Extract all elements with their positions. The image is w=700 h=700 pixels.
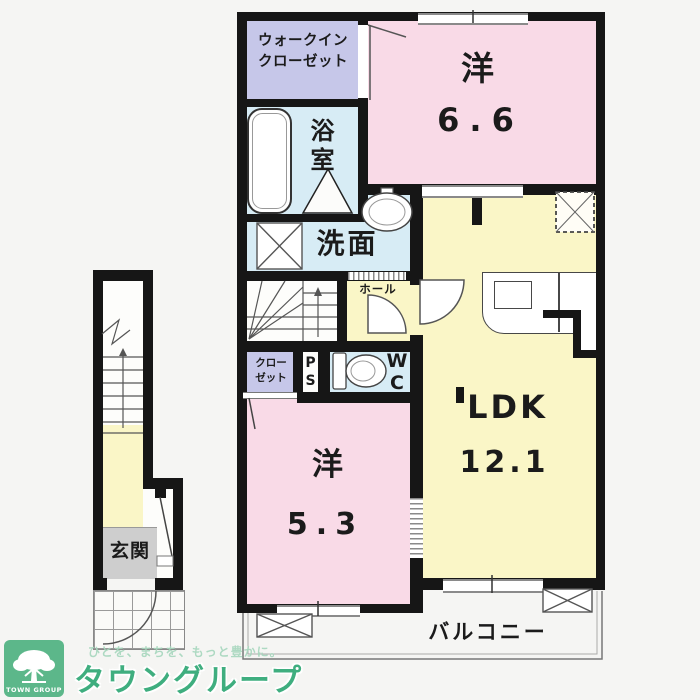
annex-wall-bottom-left: [93, 578, 107, 590]
label-entrance: 玄関: [104, 542, 156, 561]
room-stairwell-annex: [103, 281, 143, 427]
town-group-logo: TOWN GROUP: [4, 640, 64, 697]
closet-sliding-door: [243, 392, 297, 399]
floor-plan-canvas: ウォークイン クローゼット 浴室 洋 6.6 洗面 ホール クロー ゼット P …: [0, 0, 700, 700]
ac-unit-right-icon: [543, 589, 592, 612]
label-balcony: バルコニー: [408, 622, 568, 643]
wall-bath-bottom: [237, 214, 362, 222]
annex-wall-left: [93, 270, 103, 590]
label-bathroom: 浴室: [308, 112, 332, 182]
sliding-door-66-ldk: [422, 185, 523, 198]
wall-niche: [581, 318, 596, 350]
label-closet: クロー ゼット: [246, 356, 296, 386]
label-ps-line2: S: [302, 373, 319, 391]
label-66-type: 洋: [440, 52, 515, 85]
wall-niche-bottom: [573, 350, 596, 358]
door-washroom: [348, 272, 406, 280]
wall-kitchen-stub-h: [543, 310, 581, 318]
entrance-porch-tiles: [93, 590, 185, 650]
label-ldk-type: LDK: [450, 391, 565, 423]
label-closet-line1: クロー: [246, 356, 296, 371]
label-wc-line1: W: [386, 351, 408, 373]
annex-wall-right-upper: [143, 270, 153, 486]
brand-name: タウングループ: [74, 655, 303, 700]
label-hall: ホール: [346, 284, 410, 296]
annex-door-frame: [155, 488, 166, 498]
sliding-door-53-ldk: [410, 498, 423, 558]
label-wc: W C: [386, 351, 408, 395]
room-western-5-3: [243, 397, 417, 608]
annex-landing: [103, 425, 143, 527]
annex-wall-right-lower: [173, 483, 183, 590]
label-ps-line1: P: [302, 355, 319, 373]
label-53-type: 洋: [295, 450, 360, 481]
room-stairwell-main: [243, 277, 341, 345]
label-wc-line2: C: [386, 373, 408, 395]
label-66-area: 6.6: [428, 104, 533, 136]
label-walk-in-closet: ウォークイン クローゼット: [248, 31, 358, 73]
window-top-66: [418, 13, 528, 25]
label-53-area: 5.3: [278, 510, 373, 540]
wall-ps-right: [318, 348, 330, 397]
ac-unit-left-icon: [257, 614, 312, 637]
stove-icon: [494, 281, 532, 309]
door-gap-wic-66: [358, 25, 368, 98]
logo-caption: TOWN GROUP: [6, 686, 62, 694]
room-ldk: [415, 184, 600, 590]
doorway-hall-ldk: [410, 285, 423, 335]
tree-icon: [8, 648, 60, 686]
label-wic-line1: ウォークイン: [248, 31, 358, 52]
window-bottom-ldk: [443, 579, 543, 593]
label-closet-line2: ゼット: [246, 371, 296, 386]
label-wic-line2: クローゼット: [248, 52, 358, 73]
counter-divider: [558, 272, 560, 332]
label-ps: P S: [302, 355, 319, 390]
wall-wic-bottom: [237, 99, 362, 107]
label-ldk-area: 12.1: [442, 448, 567, 478]
wall-right: [596, 12, 605, 590]
label-washroom: 洗面: [300, 230, 395, 258]
annex-wall-bottom-right: [155, 578, 183, 590]
window-bottom-53: [277, 605, 360, 617]
